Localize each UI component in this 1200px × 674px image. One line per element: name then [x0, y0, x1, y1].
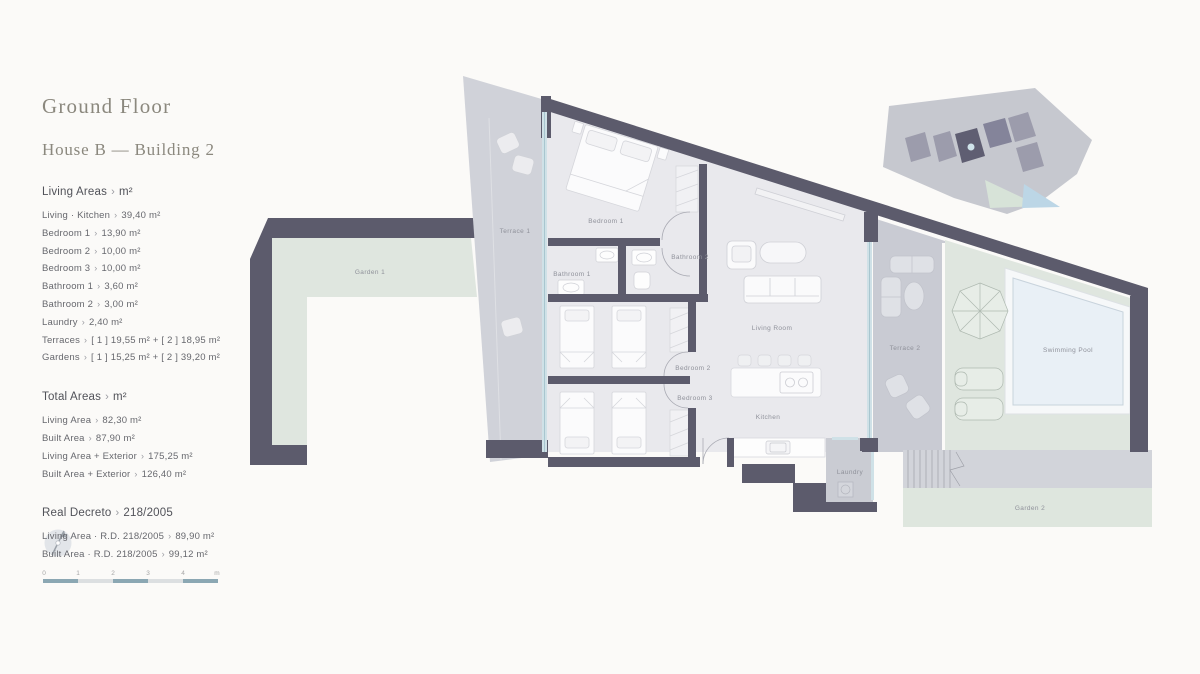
- room-label-laundry: Laundry: [837, 469, 864, 476]
- page-subtitle: House B — Building 2: [42, 140, 312, 160]
- terrace-1: [463, 76, 545, 462]
- area-row: Built Area›87,90 m²: [42, 430, 312, 448]
- area-row: Bathroom 2›3,00 m²: [42, 296, 312, 314]
- section-real-decreto: Real Decreto›218/2005 Living Area · R.D.…: [42, 507, 312, 564]
- area-row: Bedroom 1›13,90 m²: [42, 225, 312, 243]
- room-label-kitchen: Kitchen: [756, 414, 780, 421]
- info-panel: Ground Floor House B — Building 2 Living…: [42, 94, 312, 588]
- sofa-icon: [744, 276, 821, 303]
- rear-path-and-stairs: [903, 450, 1152, 488]
- page-title: Ground Floor: [42, 94, 312, 119]
- room-label-bedroom-2: Bedroom 2: [675, 365, 710, 372]
- area-row: Built Area + Exterior›126,40 m²: [42, 466, 312, 484]
- room-label-bathroom-1: Bathroom 1: [553, 271, 591, 278]
- room-label-swimming-pool: Swimming Pool: [1043, 347, 1093, 354]
- area-row: Gardens›[ 1 ] 15,25 m² + [ 2 ] 39,20 m²: [42, 349, 312, 367]
- room-label-garden-1: Garden 1: [355, 269, 385, 276]
- coffee-table-icon: [760, 242, 806, 263]
- room-label-bathroom-2: Bathroom 2: [671, 254, 709, 261]
- section-living-areas: Living Areas›m² Living · Kitchen›39,40 m…: [42, 186, 312, 367]
- area-row: Living Area + Exterior›175,25 m²: [42, 448, 312, 466]
- section-heading: Real Decreto›218/2005: [42, 507, 312, 519]
- garden-pool-area: [945, 240, 1130, 452]
- terrace-2: [873, 218, 945, 452]
- area-row: Terraces›[ 1 ] 19,55 m² + [ 2 ] 18,95 m²: [42, 332, 312, 350]
- area-row: Bathroom 1›3,60 m²: [42, 278, 312, 296]
- room-label-garden-2: Garden 2: [1015, 505, 1045, 512]
- area-row: Bedroom 2›10,00 m²: [42, 243, 312, 261]
- area-row: Living Area›82,30 m²: [42, 412, 312, 430]
- room-label-bedroom-3: Bedroom 3: [677, 395, 712, 402]
- section-heading: Total Areas›m²: [42, 391, 312, 403]
- area-row: Living · Kitchen›39,40 m²: [42, 207, 312, 225]
- section-heading: Living Areas›m²: [42, 186, 312, 198]
- area-row: Living Area · R.D. 218/2005›89,90 m²: [42, 528, 312, 546]
- area-row: Bedroom 3›10,00 m²: [42, 260, 312, 278]
- area-row: Built Area · R.D. 218/2005›99,12 m²: [42, 546, 312, 564]
- room-label-living-room: Living Room: [752, 325, 793, 332]
- room-label-terrace-2: Terrace 2: [890, 345, 921, 352]
- room-label-bedroom-1: Bedroom 1: [588, 218, 623, 225]
- section-total-areas: Total Areas›m² Living Area›82,30 m² Buil…: [42, 391, 312, 483]
- site-key-plan: [883, 88, 1092, 214]
- room-label-terrace-1: Terrace 1: [500, 228, 531, 235]
- area-row: Laundry›2,40 m²: [42, 314, 312, 332]
